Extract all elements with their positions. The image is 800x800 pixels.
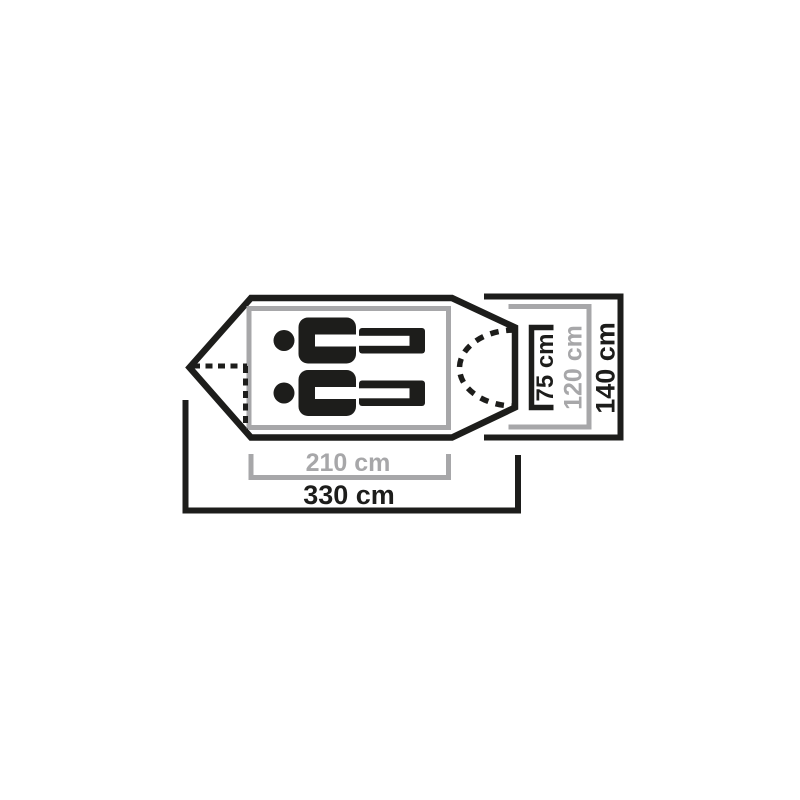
tent-outline — [190, 298, 516, 438]
label-total-width: 140 cm — [591, 322, 621, 414]
person-2-legs-notch — [359, 388, 410, 398]
tent-floorplan-diagram: 210 cm 330 cm 140 cm 120 cm 75 cm — [0, 0, 800, 800]
person-icon-2 — [274, 370, 426, 416]
label-total-length: 330 cm — [303, 480, 395, 510]
label-inner-length: 210 cm — [306, 449, 391, 477]
label-entrance-width: 75 cm — [532, 333, 559, 401]
label-inner-width: 120 cm — [560, 325, 588, 410]
person-2-head — [274, 383, 295, 404]
tent-floorplan-svg: 210 cm 330 cm 140 cm 120 cm 75 cm — [0, 0, 800, 800]
person-1-torso-notch — [315, 335, 357, 347]
door-swing-arc — [460, 330, 515, 406]
person-1-head — [274, 330, 295, 351]
person-2-torso-notch — [315, 387, 357, 399]
person-icon-1 — [274, 318, 426, 364]
person-1-legs-notch — [359, 336, 410, 346]
